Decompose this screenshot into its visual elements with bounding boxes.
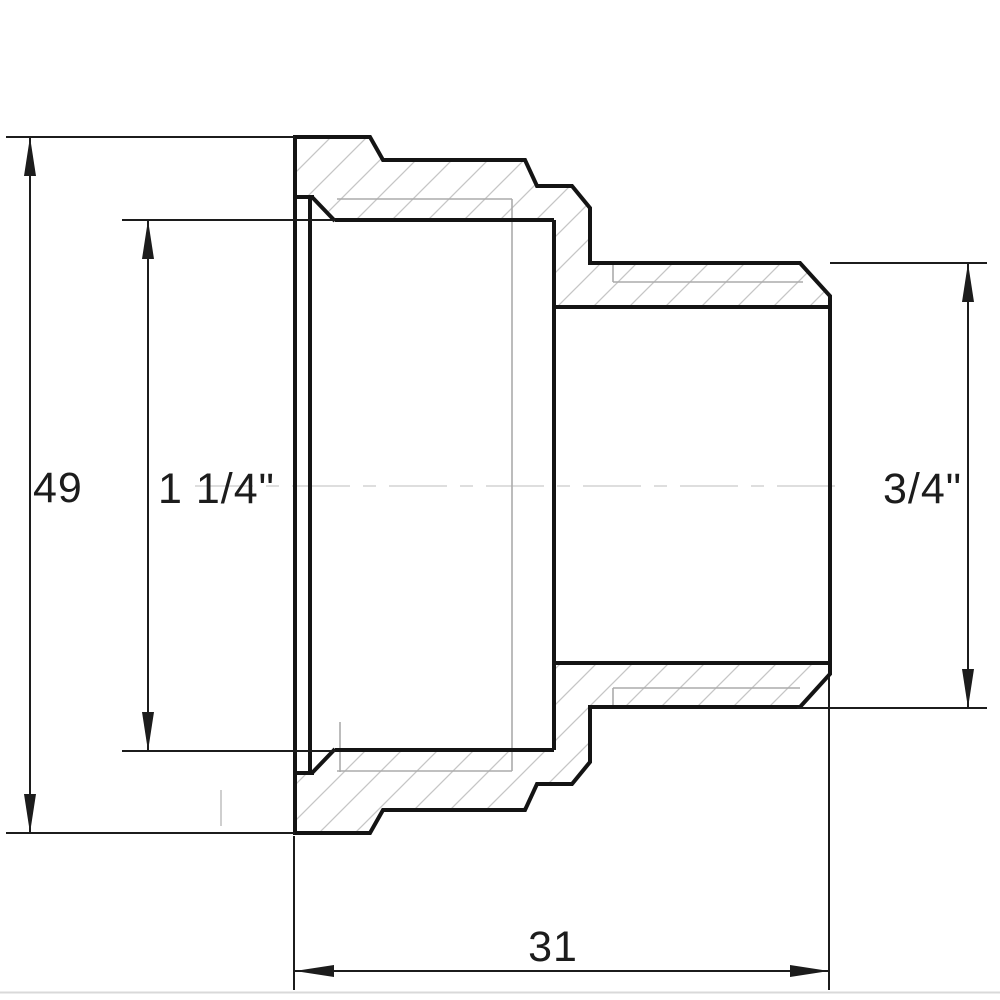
arrow-up — [962, 263, 974, 302]
arrow-down — [962, 669, 974, 708]
arrow-up — [142, 220, 154, 259]
arrow-down — [142, 712, 154, 751]
arrow-right — [790, 965, 829, 977]
dim-label-male-thread: 3/4" — [883, 465, 962, 513]
drawing-page: 49 1 1/4" 3/4" 31 — [0, 0, 1000, 1000]
arrow-left — [295, 965, 334, 977]
dim-label-overall-height: 49 — [33, 464, 83, 512]
arrow-down — [24, 794, 36, 833]
technical-drawing-canvas: 49 1 1/4" 3/4" 31 — [0, 0, 1000, 1000]
arrow-up — [24, 137, 36, 176]
dim-label-female-thread: 1 1/4" — [158, 465, 275, 513]
dim-label-male-end-length: 31 — [528, 923, 578, 971]
